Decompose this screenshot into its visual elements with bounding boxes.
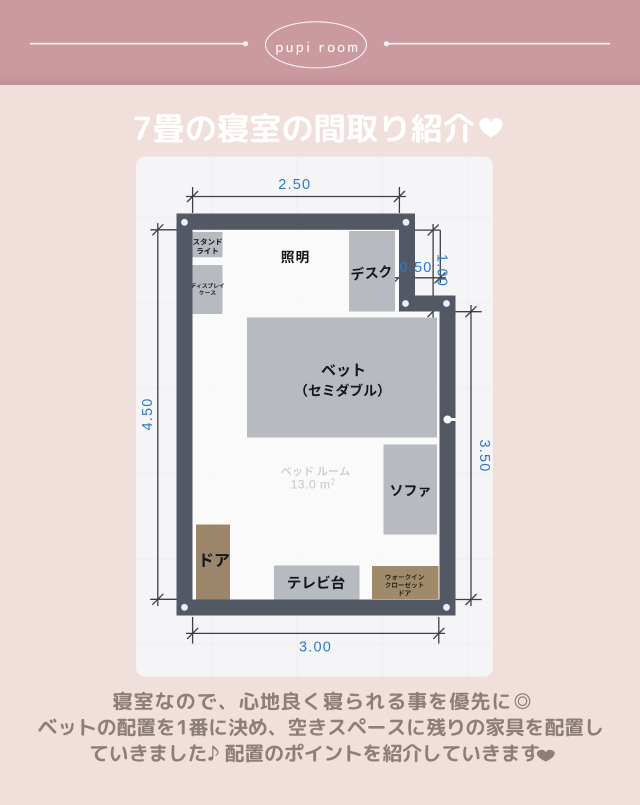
svg-text:2.50: 2.50: [278, 177, 311, 193]
svg-text:0.50: 0.50: [399, 260, 432, 276]
svg-text:3.50: 3.50: [476, 439, 492, 472]
svg-text:4.50: 4.50: [140, 397, 156, 430]
svg-text:13.0 m2: 13.0 m2: [291, 478, 336, 492]
svg-text:3.00: 3.00: [299, 640, 332, 656]
svg-text:1.00: 1.00: [434, 254, 450, 287]
